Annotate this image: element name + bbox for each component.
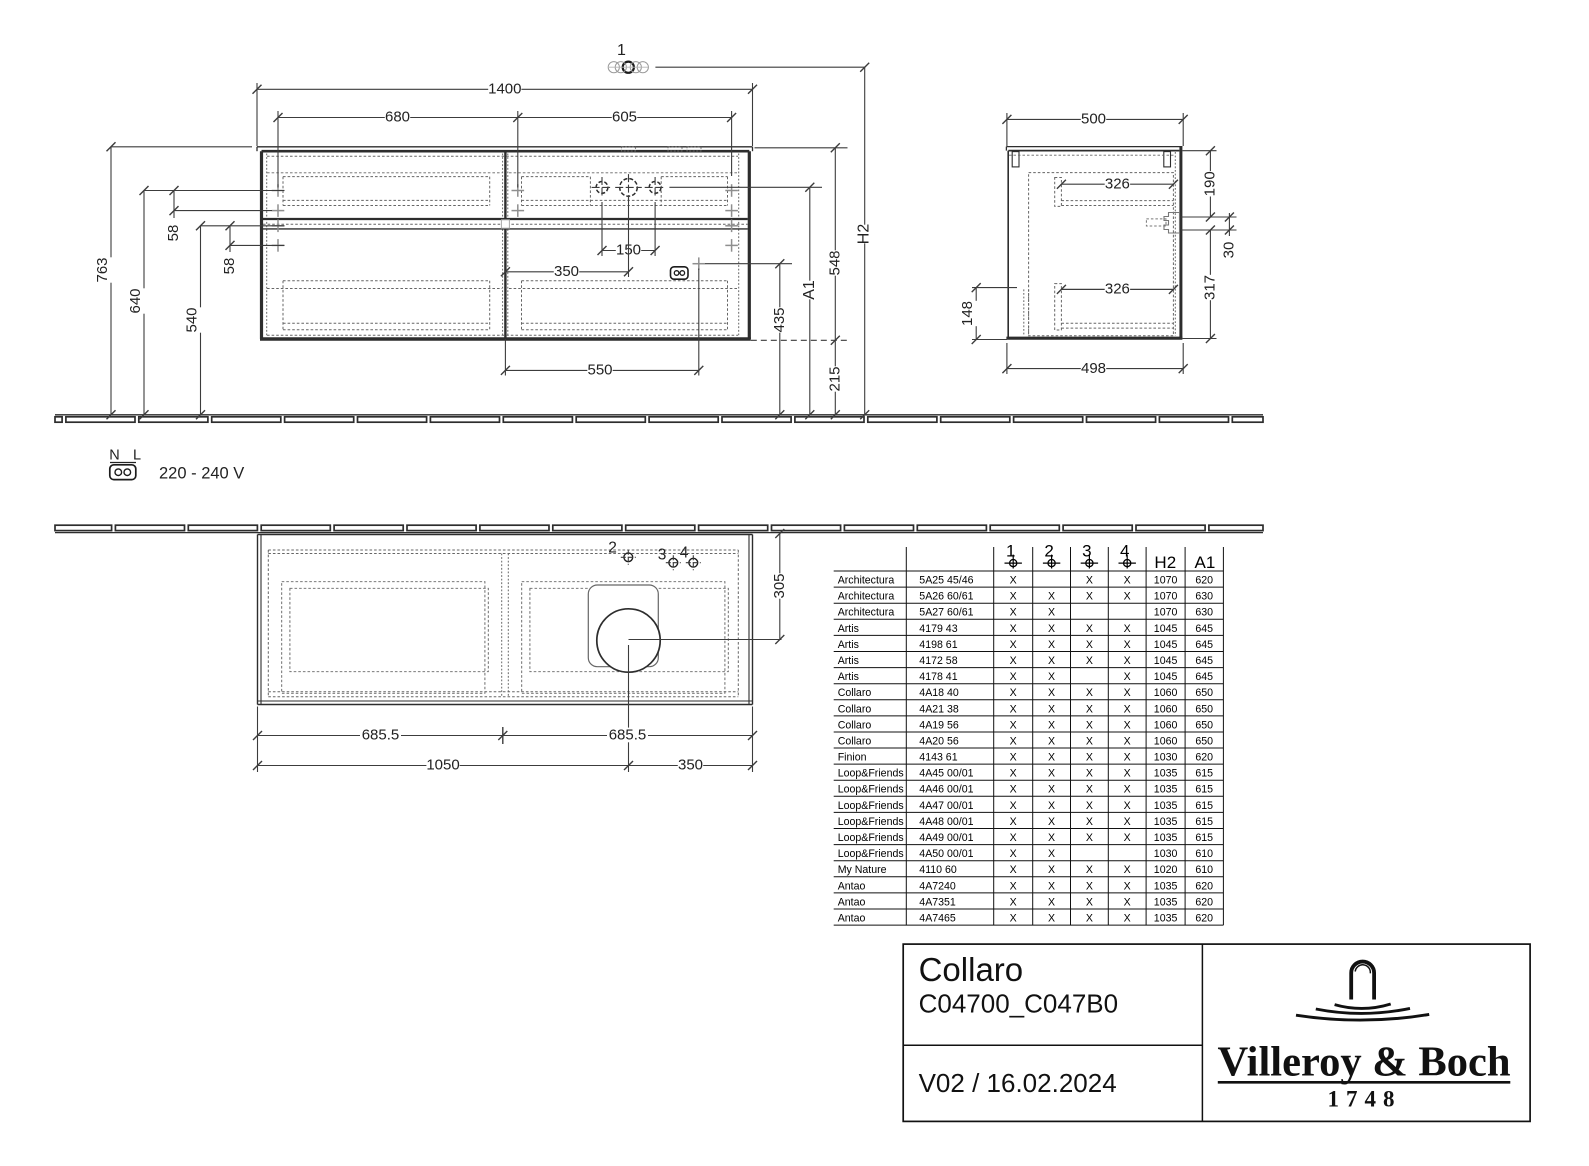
- svg-text:X: X: [1086, 832, 1093, 844]
- svg-text:Architectura: Architectura: [838, 607, 895, 619]
- svg-text:4110 60: 4110 60: [919, 864, 957, 876]
- svg-text:1748: 1748: [1328, 1087, 1402, 1112]
- svg-text:X: X: [1010, 575, 1017, 587]
- svg-text:350: 350: [678, 757, 703, 774]
- svg-text:640: 640: [127, 288, 144, 313]
- svg-text:4172 58: 4172 58: [919, 655, 957, 667]
- svg-text:620: 620: [1195, 896, 1213, 908]
- svg-text:548: 548: [826, 250, 843, 275]
- svg-text:1045: 1045: [1154, 623, 1178, 635]
- svg-text:X: X: [1086, 687, 1093, 699]
- svg-text:Artis: Artis: [838, 623, 859, 635]
- svg-text:3: 3: [658, 547, 667, 564]
- svg-text:X: X: [1124, 719, 1131, 731]
- svg-text:X: X: [1010, 752, 1017, 764]
- svg-text:H2: H2: [856, 224, 873, 245]
- svg-text:1035: 1035: [1154, 880, 1178, 892]
- svg-text:4A48 00/01: 4A48 00/01: [919, 816, 973, 828]
- svg-text:4198 61: 4198 61: [919, 639, 957, 651]
- svg-text:605: 605: [612, 109, 637, 126]
- svg-text:N: N: [109, 448, 119, 464]
- svg-text:X: X: [1086, 816, 1093, 828]
- svg-text:X: X: [1086, 623, 1093, 635]
- svg-text:X: X: [1124, 896, 1131, 908]
- svg-text:X: X: [1086, 800, 1093, 812]
- svg-text:5A27 60/61: 5A27 60/61: [919, 607, 973, 619]
- svg-text:30: 30: [1220, 242, 1237, 259]
- svg-text:X: X: [1086, 719, 1093, 731]
- svg-text:X: X: [1124, 752, 1131, 764]
- svg-text:1: 1: [617, 42, 626, 59]
- svg-text:1030: 1030: [1154, 848, 1178, 860]
- svg-text:Villeroy & Boch: Villeroy & Boch: [1218, 1040, 1511, 1086]
- svg-text:X: X: [1086, 880, 1093, 892]
- svg-text:220 - 240 V: 220 - 240 V: [159, 465, 244, 483]
- svg-text:4A50 00/01: 4A50 00/01: [919, 848, 973, 860]
- svg-text:215: 215: [826, 366, 843, 391]
- svg-text:Antao: Antao: [838, 913, 866, 925]
- svg-text:685.5: 685.5: [362, 727, 400, 744]
- svg-text:650: 650: [1195, 719, 1213, 731]
- svg-text:X: X: [1010, 591, 1017, 603]
- svg-text:X: X: [1124, 591, 1131, 603]
- svg-text:X: X: [1010, 864, 1017, 876]
- svg-text:4A19 56: 4A19 56: [919, 719, 959, 731]
- svg-text:Collaro: Collaro: [838, 703, 872, 715]
- svg-text:1070: 1070: [1154, 575, 1178, 587]
- svg-text:630: 630: [1195, 591, 1213, 603]
- svg-text:X: X: [1048, 864, 1055, 876]
- svg-text:Loop&Friends: Loop&Friends: [838, 832, 904, 844]
- svg-text:620: 620: [1195, 913, 1213, 925]
- svg-text:X: X: [1048, 880, 1055, 892]
- svg-text:X: X: [1048, 735, 1055, 747]
- svg-text:X: X: [1124, 784, 1131, 796]
- svg-text:630: 630: [1195, 607, 1213, 619]
- svg-text:X: X: [1010, 671, 1017, 683]
- svg-text:Antao: Antao: [838, 880, 866, 892]
- svg-text:X: X: [1048, 719, 1055, 731]
- svg-text:2: 2: [608, 540, 617, 557]
- svg-text:Loop&Friends: Loop&Friends: [838, 848, 904, 860]
- svg-text:X: X: [1124, 864, 1131, 876]
- svg-text:H2: H2: [1154, 553, 1176, 572]
- svg-text:317: 317: [1201, 275, 1218, 300]
- svg-text:326: 326: [1105, 175, 1130, 192]
- svg-text:X: X: [1124, 655, 1131, 667]
- svg-text:A1: A1: [801, 280, 818, 300]
- svg-text:615: 615: [1195, 768, 1213, 780]
- svg-text:645: 645: [1195, 639, 1213, 651]
- svg-text:620: 620: [1195, 752, 1213, 764]
- svg-text:4A7351: 4A7351: [919, 896, 956, 908]
- svg-text:Collaro: Collaro: [838, 735, 872, 747]
- svg-text:1: 1: [1006, 542, 1015, 561]
- svg-text:Collaro: Collaro: [838, 687, 872, 699]
- svg-text:X: X: [1124, 575, 1131, 587]
- svg-text:X: X: [1124, 913, 1131, 925]
- svg-text:Loop&Friends: Loop&Friends: [838, 800, 904, 812]
- svg-text:X: X: [1048, 800, 1055, 812]
- svg-text:763: 763: [94, 257, 111, 282]
- svg-text:5A25 45/46: 5A25 45/46: [919, 575, 973, 587]
- svg-text:615: 615: [1195, 784, 1213, 796]
- svg-text:X: X: [1010, 848, 1017, 860]
- svg-text:X: X: [1010, 623, 1017, 635]
- svg-text:4A20 56: 4A20 56: [919, 735, 959, 747]
- svg-text:1035: 1035: [1154, 832, 1178, 844]
- svg-text:1035: 1035: [1154, 816, 1178, 828]
- svg-text:1050: 1050: [426, 757, 459, 774]
- svg-text:X: X: [1010, 639, 1017, 651]
- svg-text:Loop&Friends: Loop&Friends: [838, 816, 904, 828]
- svg-text:1045: 1045: [1154, 671, 1178, 683]
- svg-text:X: X: [1048, 591, 1055, 603]
- svg-text:4A18 40: 4A18 40: [919, 687, 959, 699]
- svg-text:X: X: [1048, 896, 1055, 908]
- svg-text:2: 2: [1044, 542, 1053, 561]
- svg-text:350: 350: [554, 263, 579, 280]
- svg-text:Architectura: Architectura: [838, 591, 895, 603]
- svg-text:Antao: Antao: [838, 896, 866, 908]
- svg-text:4179 43: 4179 43: [919, 623, 957, 635]
- svg-text:X: X: [1086, 784, 1093, 796]
- svg-text:Collaro: Collaro: [838, 719, 872, 731]
- svg-text:C04700_C047B0: C04700_C047B0: [919, 988, 1119, 1018]
- svg-text:X: X: [1048, 816, 1055, 828]
- svg-text:A1: A1: [1195, 553, 1216, 572]
- svg-text:X: X: [1086, 768, 1093, 780]
- svg-text:645: 645: [1195, 671, 1213, 683]
- svg-text:1070: 1070: [1154, 607, 1178, 619]
- svg-text:58: 58: [221, 258, 238, 275]
- svg-text:1035: 1035: [1154, 800, 1178, 812]
- svg-text:X: X: [1010, 719, 1017, 731]
- svg-text:4A45 00/01: 4A45 00/01: [919, 768, 973, 780]
- svg-text:X: X: [1010, 816, 1017, 828]
- svg-text:Artis: Artis: [838, 639, 859, 651]
- svg-text:326: 326: [1105, 281, 1130, 298]
- svg-text:X: X: [1086, 575, 1093, 587]
- svg-text:1045: 1045: [1154, 655, 1178, 667]
- svg-text:X: X: [1124, 671, 1131, 683]
- svg-text:4: 4: [680, 545, 689, 562]
- svg-text:X: X: [1048, 848, 1055, 860]
- svg-text:X: X: [1048, 703, 1055, 715]
- svg-text:645: 645: [1195, 623, 1213, 635]
- svg-text:1060: 1060: [1154, 687, 1178, 699]
- svg-text:X: X: [1048, 639, 1055, 651]
- svg-text:X: X: [1124, 735, 1131, 747]
- svg-text:4A7465: 4A7465: [919, 913, 956, 925]
- svg-text:435: 435: [771, 307, 788, 332]
- svg-text:685.5: 685.5: [609, 727, 647, 744]
- svg-text:X: X: [1086, 703, 1093, 715]
- svg-text:540: 540: [184, 307, 201, 332]
- svg-text:1060: 1060: [1154, 703, 1178, 715]
- svg-text:1045: 1045: [1154, 639, 1178, 651]
- svg-text:4A21 38: 4A21 38: [919, 703, 959, 715]
- svg-text:X: X: [1010, 735, 1017, 747]
- svg-text:645: 645: [1195, 655, 1213, 667]
- svg-text:4A47 00/01: 4A47 00/01: [919, 800, 973, 812]
- svg-text:Loop&Friends: Loop&Friends: [838, 768, 904, 780]
- svg-text:X: X: [1010, 655, 1017, 667]
- svg-text:5A26 60/61: 5A26 60/61: [919, 591, 973, 603]
- svg-text:1035: 1035: [1154, 784, 1178, 796]
- svg-text:X: X: [1124, 880, 1131, 892]
- svg-text:X: X: [1124, 639, 1131, 651]
- svg-text:My Nature: My Nature: [838, 864, 887, 876]
- svg-text:X: X: [1010, 896, 1017, 908]
- svg-text:Artis: Artis: [838, 655, 859, 667]
- svg-text:4A49 00/01: 4A49 00/01: [919, 832, 973, 844]
- svg-text:X: X: [1010, 913, 1017, 925]
- svg-text:4143 61: 4143 61: [919, 752, 957, 764]
- svg-text:X: X: [1124, 687, 1131, 699]
- svg-text:X: X: [1048, 671, 1055, 683]
- svg-text:190: 190: [1201, 171, 1218, 196]
- svg-text:X: X: [1086, 735, 1093, 747]
- svg-text:X: X: [1010, 703, 1017, 715]
- svg-text:1035: 1035: [1154, 913, 1178, 925]
- svg-text:Collaro: Collaro: [919, 951, 1024, 988]
- svg-text:X: X: [1048, 768, 1055, 780]
- svg-text:X: X: [1048, 752, 1055, 764]
- svg-text:610: 610: [1195, 864, 1213, 876]
- svg-text:1060: 1060: [1154, 735, 1178, 747]
- svg-text:4178 41: 4178 41: [919, 671, 957, 683]
- svg-text:X: X: [1086, 896, 1093, 908]
- svg-text:1035: 1035: [1154, 896, 1178, 908]
- svg-text:X: X: [1048, 623, 1055, 635]
- svg-text:Artis: Artis: [838, 671, 859, 683]
- svg-text:X: X: [1048, 913, 1055, 925]
- svg-text:615: 615: [1195, 832, 1213, 844]
- svg-text:X: X: [1048, 832, 1055, 844]
- svg-text:X: X: [1010, 880, 1017, 892]
- svg-text:1400: 1400: [488, 81, 521, 98]
- svg-text:620: 620: [1195, 575, 1213, 587]
- svg-text:X: X: [1048, 687, 1055, 699]
- svg-text:610: 610: [1195, 848, 1213, 860]
- svg-text:1030: 1030: [1154, 752, 1178, 764]
- svg-text:X: X: [1124, 800, 1131, 812]
- svg-text:148: 148: [959, 301, 976, 326]
- svg-text:305: 305: [771, 573, 788, 598]
- svg-text:4: 4: [1120, 542, 1129, 561]
- svg-text:615: 615: [1195, 816, 1213, 828]
- svg-text:X: X: [1086, 639, 1093, 651]
- svg-text:4A46 00/01: 4A46 00/01: [919, 784, 973, 796]
- svg-text:X: X: [1086, 591, 1093, 603]
- svg-text:X: X: [1086, 655, 1093, 667]
- svg-text:1070: 1070: [1154, 591, 1178, 603]
- svg-text:X: X: [1086, 913, 1093, 925]
- svg-text:650: 650: [1195, 735, 1213, 747]
- svg-text:550: 550: [587, 362, 612, 379]
- svg-text:X: X: [1048, 784, 1055, 796]
- svg-text:X: X: [1010, 800, 1017, 812]
- svg-text:500: 500: [1081, 111, 1106, 128]
- svg-text:Loop&Friends: Loop&Friends: [838, 784, 904, 796]
- svg-text:V02 / 16.02.2024: V02 / 16.02.2024: [919, 1068, 1117, 1098]
- svg-text:680: 680: [385, 109, 410, 126]
- svg-text:X: X: [1010, 784, 1017, 796]
- svg-text:X: X: [1048, 607, 1055, 619]
- svg-text:X: X: [1124, 768, 1131, 780]
- svg-text:X: X: [1010, 768, 1017, 780]
- svg-text:X: X: [1010, 832, 1017, 844]
- svg-text:4A7240: 4A7240: [919, 880, 956, 892]
- svg-text:X: X: [1124, 816, 1131, 828]
- svg-text:Finion: Finion: [838, 752, 867, 764]
- svg-text:X: X: [1048, 655, 1055, 667]
- svg-text:X: X: [1086, 752, 1093, 764]
- svg-text:X: X: [1010, 607, 1017, 619]
- svg-text:615: 615: [1195, 800, 1213, 812]
- svg-text:650: 650: [1195, 703, 1213, 715]
- svg-text:1020: 1020: [1154, 864, 1178, 876]
- svg-text:X: X: [1124, 703, 1131, 715]
- svg-text:1035: 1035: [1154, 768, 1178, 780]
- svg-text:X: X: [1010, 687, 1017, 699]
- svg-text:X: X: [1124, 623, 1131, 635]
- svg-text:498: 498: [1081, 360, 1106, 377]
- svg-text:1060: 1060: [1154, 719, 1178, 731]
- svg-text:58: 58: [165, 225, 182, 242]
- svg-text:L: L: [133, 448, 141, 464]
- svg-text:3: 3: [1082, 542, 1091, 561]
- svg-text:X: X: [1086, 864, 1093, 876]
- svg-text:Architectura: Architectura: [838, 575, 895, 587]
- svg-text:620: 620: [1195, 880, 1213, 892]
- svg-text:X: X: [1124, 832, 1131, 844]
- svg-text:650: 650: [1195, 687, 1213, 699]
